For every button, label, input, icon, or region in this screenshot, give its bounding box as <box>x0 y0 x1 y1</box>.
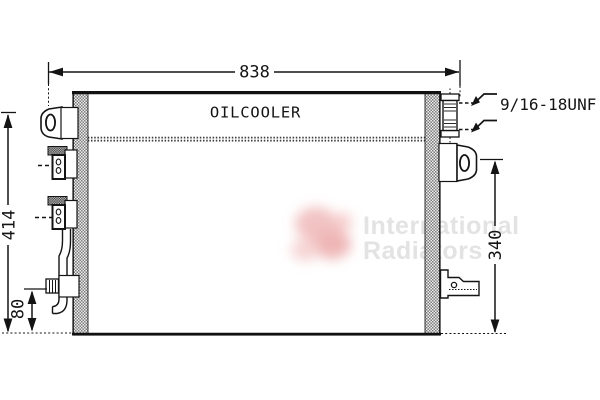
dimension-width: 838 <box>49 60 461 106</box>
watermark-line2: Radiators <box>363 237 483 265</box>
dimension-bottom-offset: 80 <box>8 289 47 332</box>
mounting-bracket-top-right <box>439 144 477 182</box>
oilcooler-label: OILCOOLER <box>210 104 301 122</box>
condenser-diagram: International Radiators OILCOOLER <box>0 0 600 400</box>
arrow-down-icon <box>491 320 500 334</box>
brand-logo-icon <box>291 207 352 261</box>
right-header-tank <box>425 92 440 335</box>
stud-icon <box>48 197 67 206</box>
arrow-up-icon <box>4 114 13 128</box>
thread-callout: 9/16-18UNF <box>459 94 596 133</box>
drain-pipe <box>53 229 71 314</box>
arrow-down-icon <box>4 319 13 333</box>
mounting-bracket-bottom-right <box>441 270 480 298</box>
mounting-bracket-top-left <box>41 107 78 139</box>
bottom-offset-value: 80 <box>8 299 28 319</box>
thread-connector <box>441 89 459 143</box>
leader-arrow-upper-icon <box>471 94 497 106</box>
stud-icon <box>48 147 67 156</box>
overall-height-value: 414 <box>0 210 19 241</box>
width-value: 838 <box>239 63 270 83</box>
oil-port-lower <box>35 197 77 230</box>
dimension-right-height: 340 <box>480 160 506 334</box>
arrow-up-icon <box>491 161 500 175</box>
right-height-value: 340 <box>486 230 506 261</box>
technical-drawing-page: International Radiators OILCOOLER <box>0 0 600 400</box>
pipe-fitting <box>46 276 79 298</box>
arrow-right-icon <box>445 68 459 77</box>
thread-spec-label: 9/16-18UNF <box>500 95 596 114</box>
arrow-down-icon <box>28 318 37 332</box>
arrow-up-icon <box>28 291 37 305</box>
leader-arrow-lower-icon <box>471 121 497 133</box>
oil-port-upper <box>38 147 77 180</box>
arrow-left-icon <box>49 68 63 77</box>
